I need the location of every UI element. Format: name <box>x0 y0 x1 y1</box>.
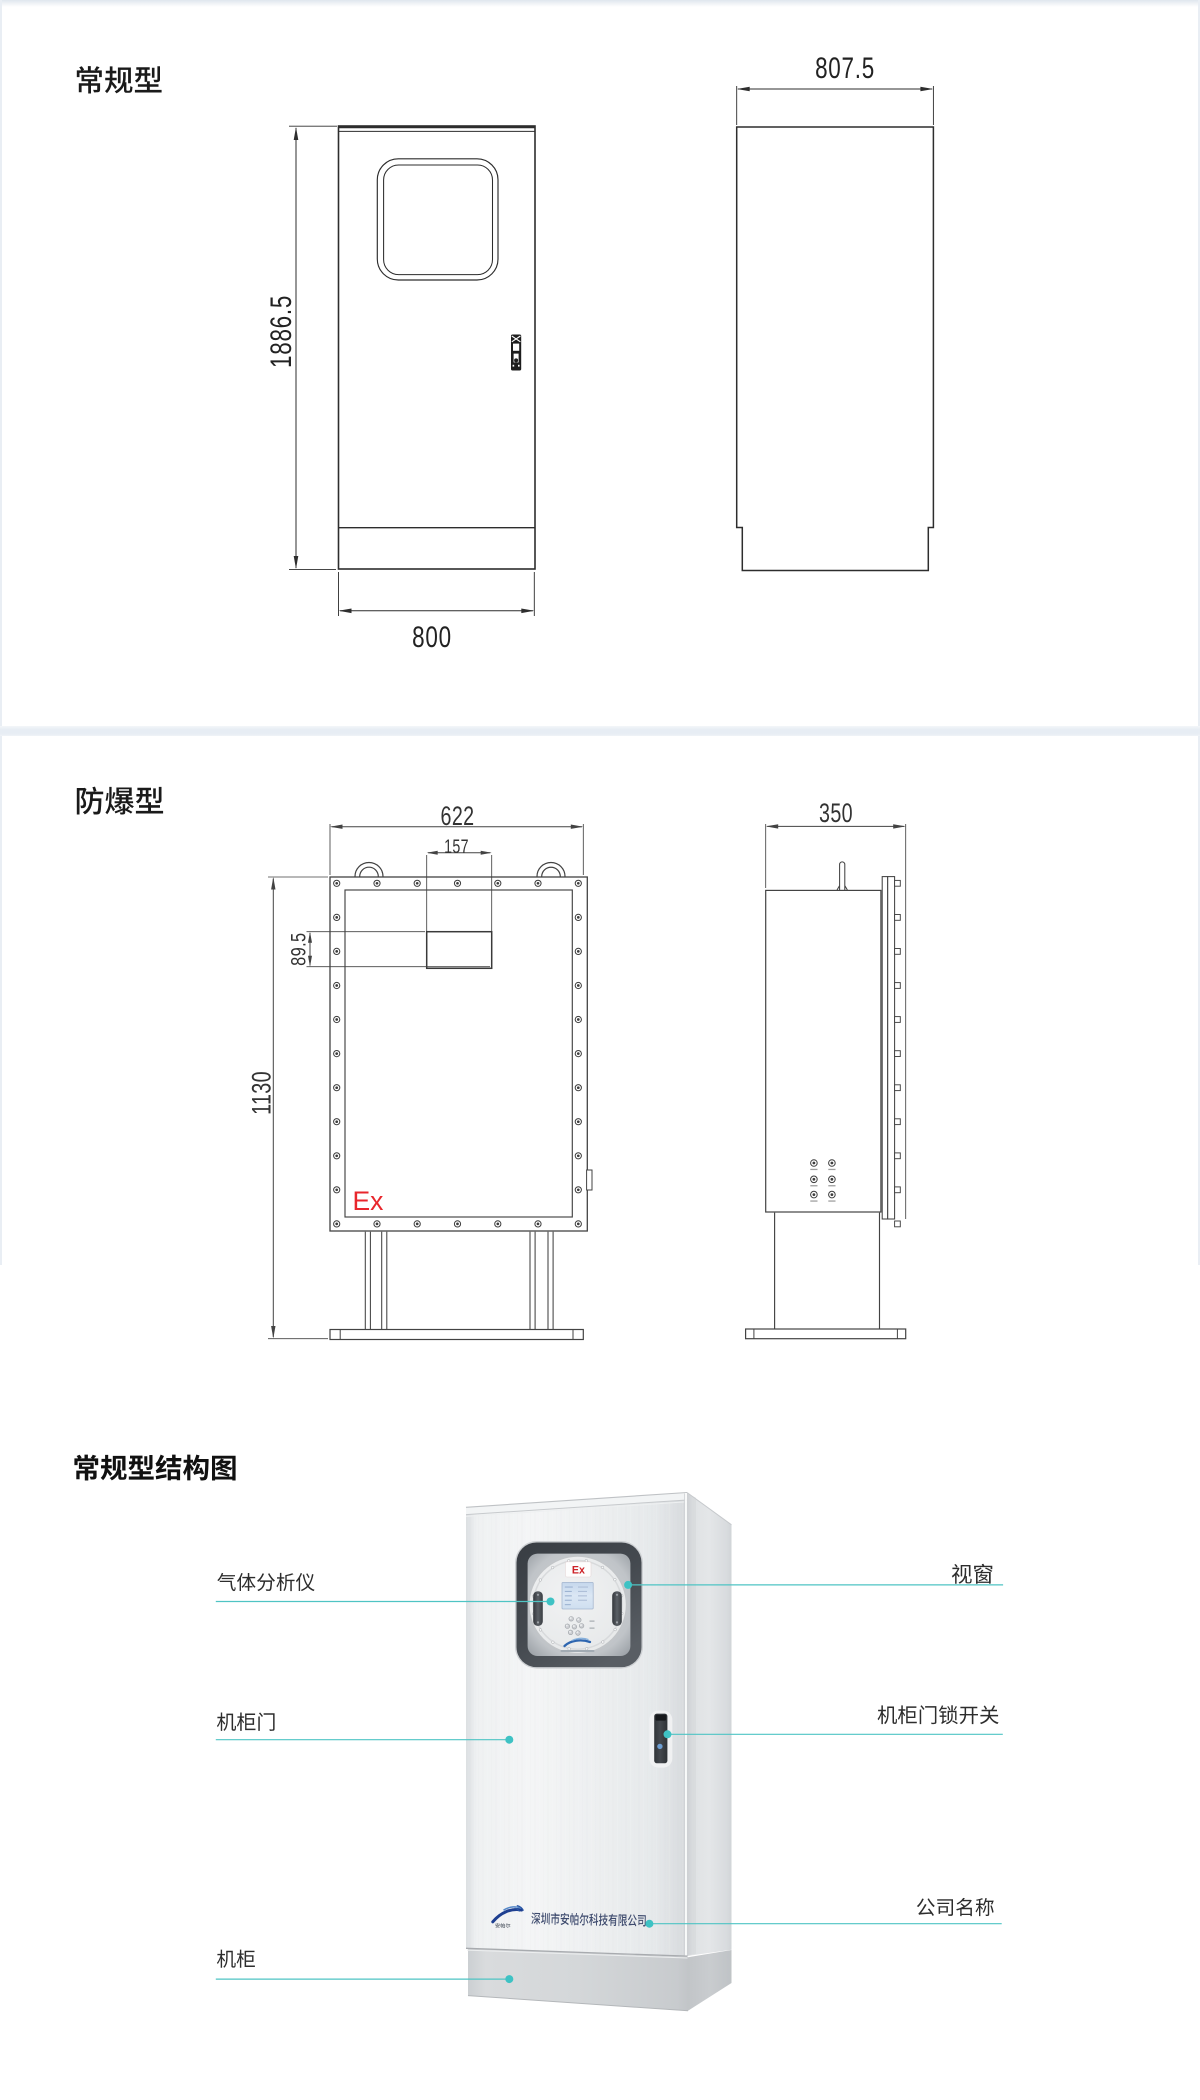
svg-text:Ex: Ex <box>353 1186 384 1216</box>
svg-text:1886.5: 1886.5 <box>264 295 298 368</box>
svg-text:622: 622 <box>441 802 475 832</box>
svg-text:1130: 1130 <box>248 1071 278 1115</box>
svg-text:800: 800 <box>412 620 452 654</box>
svg-text:807.5: 807.5 <box>815 51 875 85</box>
svg-text:350: 350 <box>819 799 853 829</box>
svg-text:157: 157 <box>444 836 469 857</box>
svg-text:89.5: 89.5 <box>287 932 310 965</box>
svg-text:Ex: Ex <box>572 1564 585 1576</box>
